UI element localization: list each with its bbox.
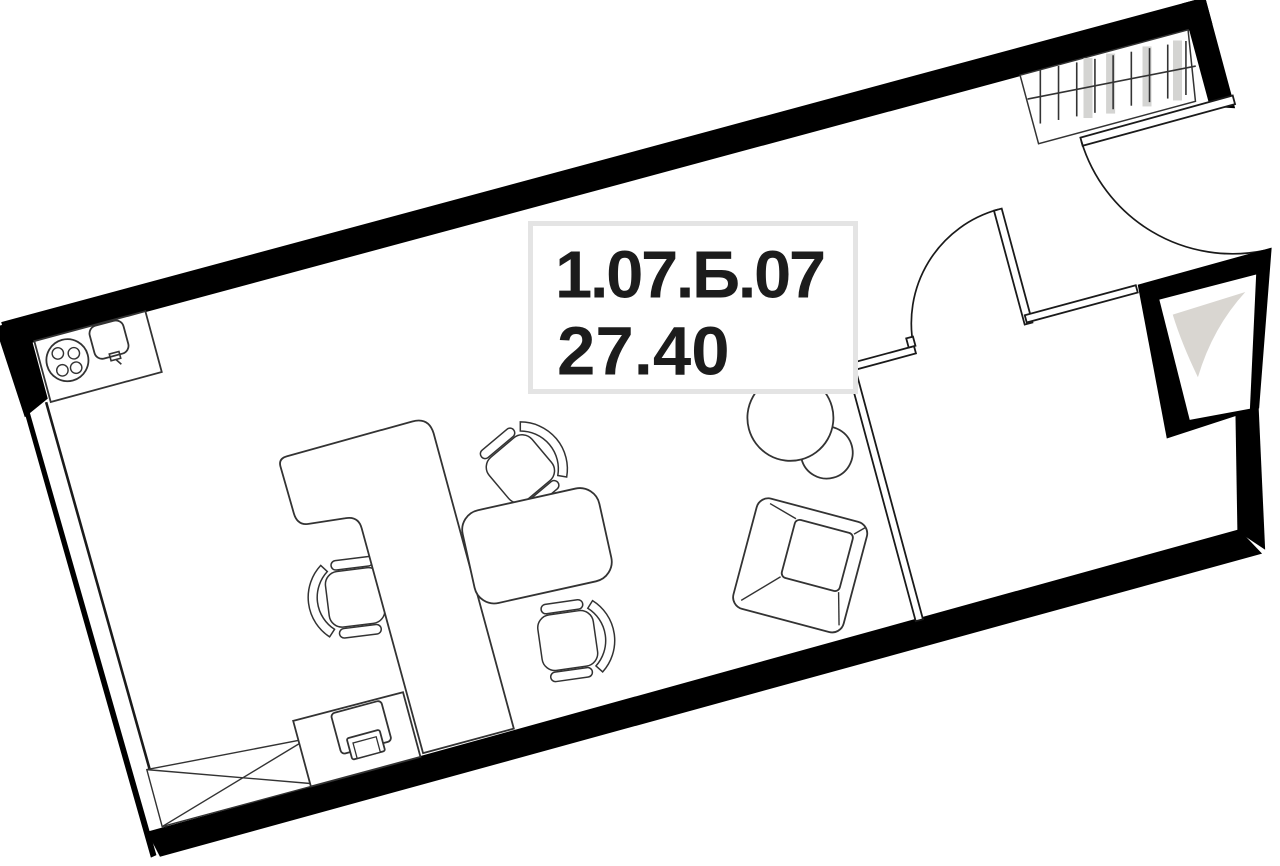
svg-text:27.40: 27.40 xyxy=(557,313,730,390)
svg-text:1.07.Б.07: 1.07.Б.07 xyxy=(555,238,824,313)
